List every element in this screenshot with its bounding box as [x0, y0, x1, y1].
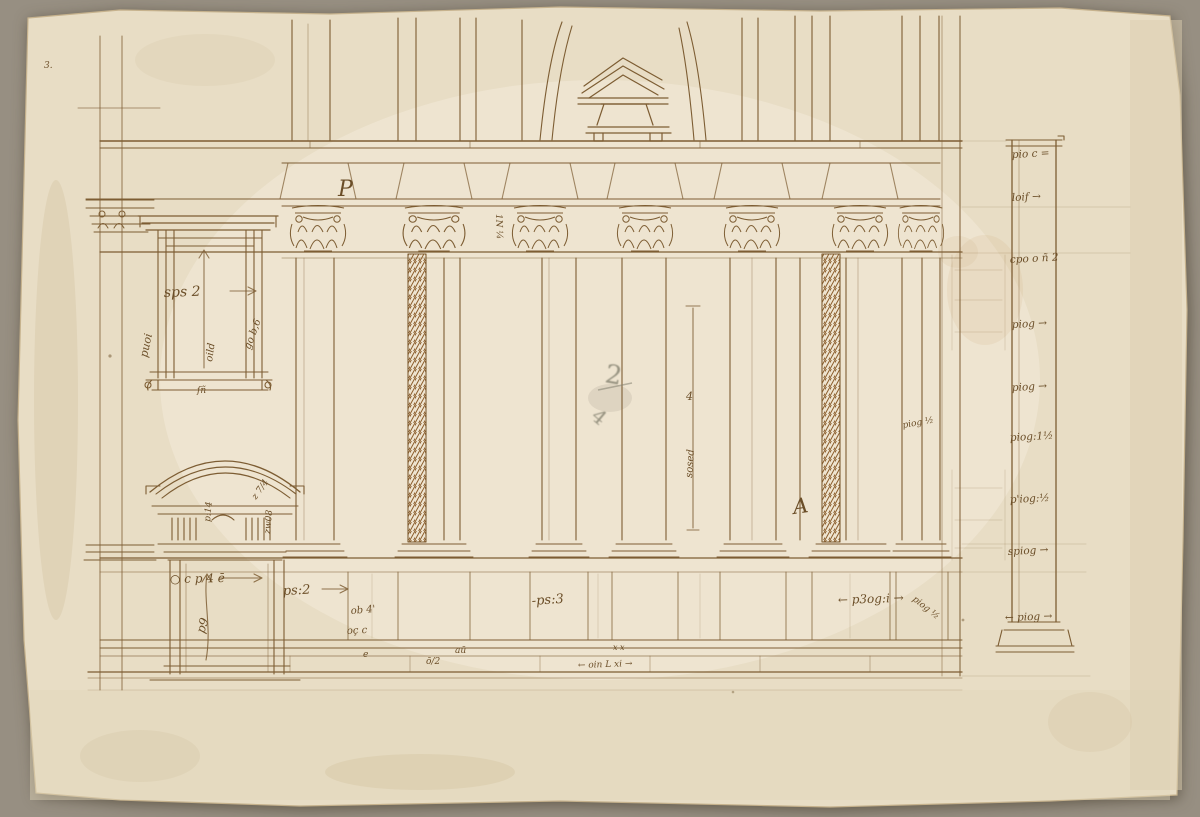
annotation-scale-8: spiog → — [1008, 544, 1049, 558]
annotation-window-sill-mark: ſñ — [196, 386, 206, 396]
hatched-pilaster-right — [822, 254, 840, 542]
annotation-plinth-mark-e: e — [363, 650, 368, 660]
annotation-scale-9: ← piog → — [1005, 610, 1053, 624]
annotation-door-frieze-dim: p:14 — [203, 501, 215, 522]
annotation-column-dim: sosed — [684, 449, 697, 478]
drawing-photo: P1N ¼sps 2puoioildgo b,6ſñp:14z 7/4zw08○… — [0, 0, 1200, 817]
annotation-scale-5: piog → — [1012, 380, 1048, 394]
annotation-pedestal-mark-2: oç c — [347, 625, 368, 637]
annotation-p-mark: P — [337, 177, 354, 202]
annotation-frieze-dim: 1N ¼ — [493, 214, 505, 240]
annotation-pedestal-width-2: -ps:3 — [531, 592, 564, 609]
annotation-door-width: ○ c p 4 ē — [170, 571, 225, 586]
annotation-plinth-mark-frac: ō/2 — [426, 657, 440, 667]
annotation-column-dim-top: 4 — [685, 390, 693, 403]
annotation-pedestal-mark-1: ob 4' — [350, 604, 376, 617]
annotation-scale-2: loif → — [1012, 190, 1042, 204]
annotation-scale-1: pio c = — [1012, 147, 1050, 161]
annotation-plinth-dim: ← oin L xi → — [578, 659, 633, 671]
annotation-plinth-mark-av: aū — [455, 646, 466, 656]
annotation-pedestal-width-1: ps:2 — [282, 583, 310, 599]
annotation-scale-3: cpo o ñ 2 — [1010, 251, 1060, 266]
annotation-scale-6: piog:1½ — [1010, 430, 1054, 444]
annotation-plinth-xx: x x — [613, 643, 625, 652]
annotation-scale-4: piog → — [1012, 317, 1048, 331]
drawing-svg: P1N ¼sps 2puoioildgo b,6ſñp:14z 7/4zw08○… — [0, 0, 1200, 817]
annotation-page-mark: 3. — [44, 61, 53, 71]
annotation-scale-7: p'iog:½ — [1010, 492, 1050, 506]
annotation-window-width: sps 2 — [164, 284, 201, 301]
hatched-pilaster-left — [408, 254, 426, 542]
annotation-pedestal-width-3: ← p3og:i → — [838, 591, 904, 607]
